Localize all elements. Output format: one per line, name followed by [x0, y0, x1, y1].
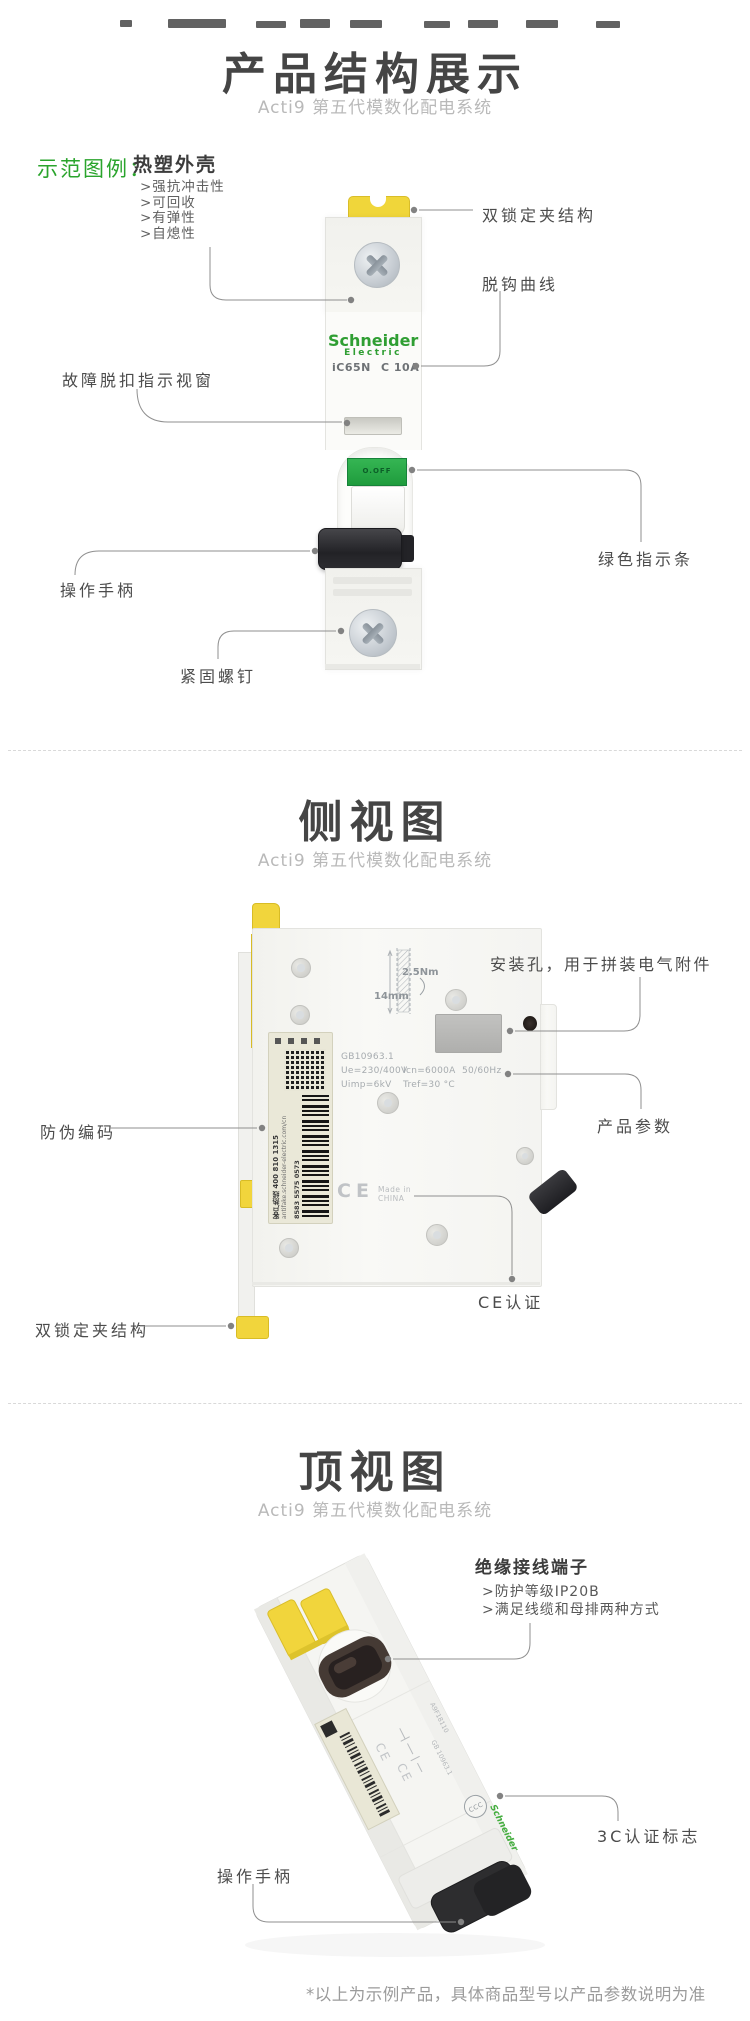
product-detail-page: 产品结构展示 Acti9 第五代模数化配电系统 示范图例： 热塑外壳 >强抗冲击… [0, 0, 750, 2021]
top-view-shadow [245, 1933, 545, 1957]
torque-text: 2.5Nm [402, 967, 439, 978]
width-text: 14mm [374, 991, 409, 1002]
top-view-photo: CE CE GB 10963.1 A9F18110 CCC Schneider [254, 1551, 541, 1949]
dimension-hatch [398, 950, 409, 1012]
annotation-overlay: CE CE GB 10963.1 A9F18110 CCC Schneider … [0, 0, 750, 2021]
dimension-marking [388, 948, 425, 1014]
